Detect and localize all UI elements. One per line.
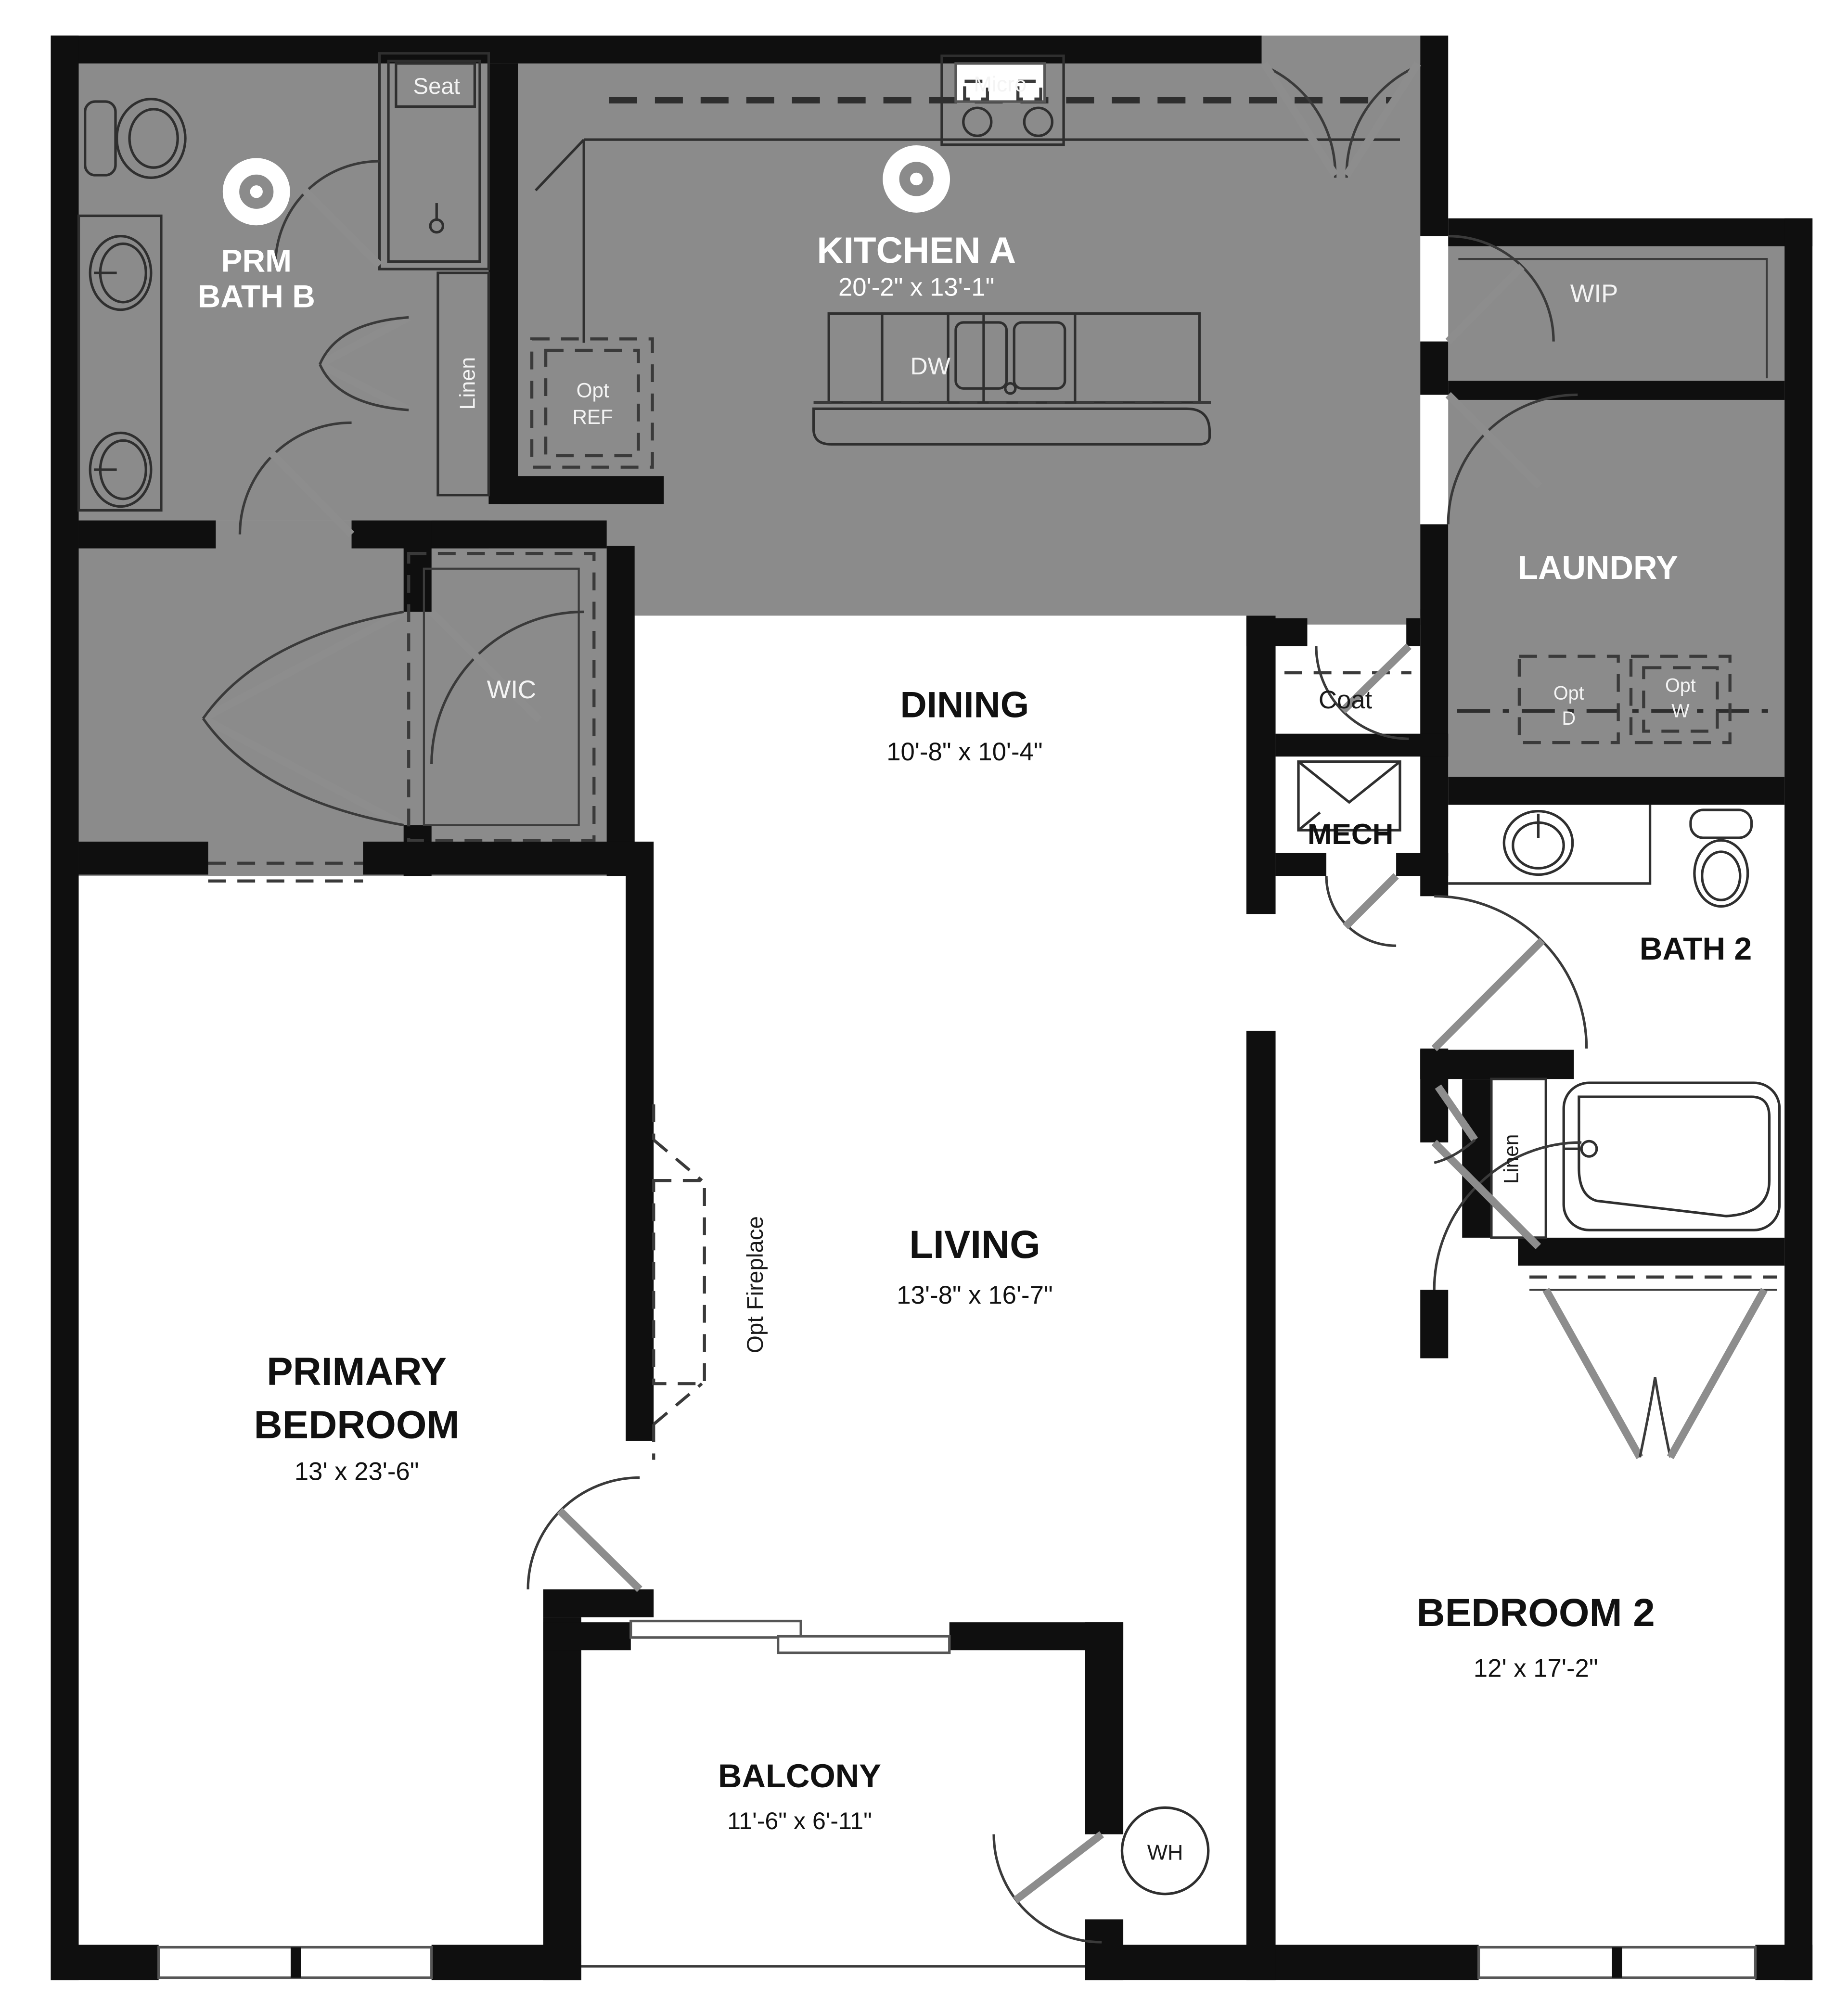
label-linen-kitchen: Linen [455,357,479,410]
room-label-primary-line2: BEDROOM [254,1403,460,1447]
bathtub-inner [1579,1097,1770,1216]
room-label-coat: Coat [1319,686,1373,714]
ceiling-light-center [250,185,263,198]
label-opt-ref-line2: REF [572,406,613,428]
toilet-bowl-inner [1702,852,1740,900]
room-label-bedroom2: BEDROOM 2 [1417,1591,1655,1635]
kitchen-floor [501,64,1420,615]
toilet-tank-icon [1691,810,1752,838]
bath2-counter [1448,805,1650,884]
wip-floor [1448,246,1784,386]
floor-plan-canvas: PRM BATH B KITCHEN A 20'-2" x 13'-1" DIN… [0,0,1848,2012]
room-label-kitchen: KITCHEN A [817,230,1016,271]
label-opt-washer-line1: Opt [1665,675,1696,696]
room-dims-bedroom2: 12' x 17'-2" [1474,1654,1598,1683]
room-label-prm-bath-line1: PRM [221,243,292,278]
opt-fireplace-dashed [654,1180,704,1384]
label-micro: Micro [974,72,1027,96]
room-label-bath2: BATH 2 [1640,931,1752,966]
floor-plan: PRM BATH B KITCHEN A 20'-2" x 13'-1" DIN… [0,0,1848,2012]
room-dims-kitchen: 20'-2" x 13'-1" [838,273,994,302]
room-label-dining: DINING [900,684,1029,725]
closet-door-curl [1655,1377,1670,1457]
label-opt-dryer-line2: D [1562,708,1576,729]
room-label-mech: MECH [1308,818,1394,850]
closet-door-curl [1640,1377,1655,1457]
balcony-sliding-door [631,1621,801,1638]
tub-faucet-icon [1581,1141,1597,1156]
room-label-living: LIVING [909,1223,1040,1267]
bath2-detail [1448,805,1779,1290]
room-dims-balcony: 11'-6" x 6'-11" [727,1807,872,1834]
label-opt-fireplace: Opt Fireplace [743,1216,768,1353]
label-opt-dryer-line1: Opt [1553,682,1584,704]
label-opt-washer-line2: W [1671,700,1690,721]
room-dims-primary: 13' x 23'-6" [295,1458,419,1486]
opt-fireplace-detail [654,1104,704,1460]
label-opt-ref-line1: Opt [577,379,609,402]
label-linen-bath: Linen [1500,1134,1522,1184]
room-label-laundry: LAUNDRY [1518,549,1678,586]
label-dw: DW [910,353,950,380]
entry-threshold [1262,36,1421,66]
room-label-wip: WIP [1570,280,1618,308]
room-label-wic: WIC [487,676,537,704]
room-dims-living: 13'-8" x 16'-7" [897,1281,1052,1309]
room-dims-dining: 10'-8" x 10'-4" [886,738,1042,766]
room-label-balcony: BALCONY [718,1757,881,1794]
balcony-sliding-door-panel [778,1636,950,1653]
room-label-primary-line1: PRIMARY [267,1350,447,1394]
bathtub-icon [1564,1083,1779,1230]
room-label-prm-bath-line2: BATH B [198,278,315,314]
label-water-heater: WH [1147,1840,1183,1864]
ceiling-light-center [910,173,923,185]
mech-unit-envelope [1298,762,1400,802]
label-seat: Seat [413,74,460,99]
